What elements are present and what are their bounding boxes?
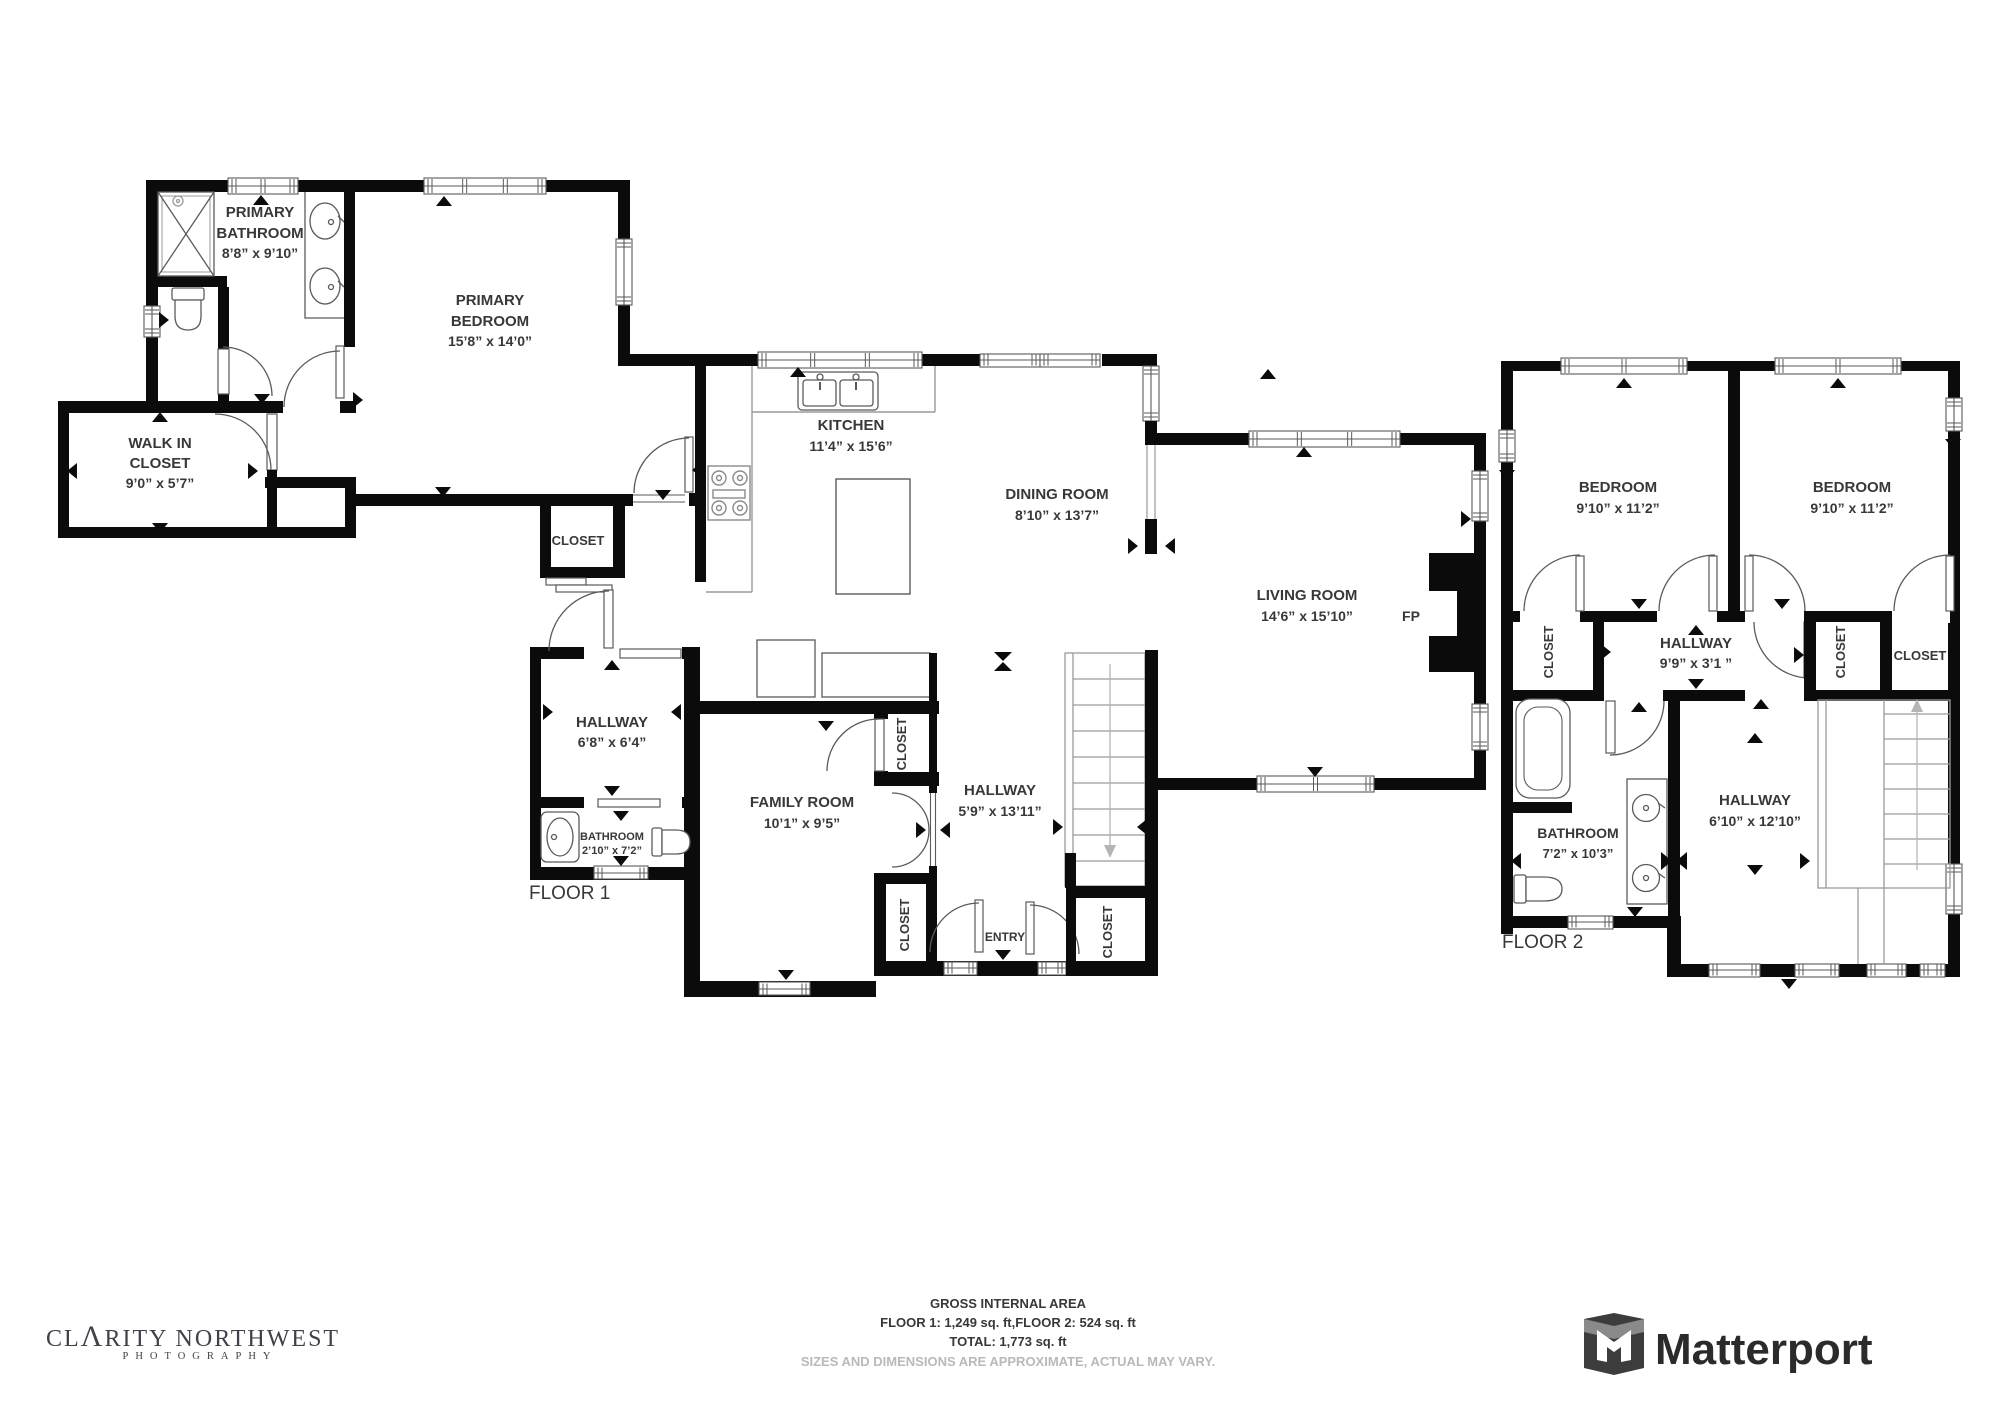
svg-text:6’8” x 6’4”: 6’8” x 6’4” (578, 734, 647, 750)
svg-text:10’1” x 9’5”: 10’1” x 9’5” (764, 815, 840, 831)
svg-text:PRIMARY: PRIMARY (226, 204, 295, 221)
svg-text:KITCHEN: KITCHEN (818, 417, 885, 434)
svg-text:CLOSET: CLOSET (1833, 626, 1848, 679)
svg-text:FP: FP (1402, 608, 1420, 624)
svg-text:HALLWAY: HALLWAY (1660, 635, 1732, 652)
svg-text:15’8” x 14’0”: 15’8” x 14’0” (448, 333, 532, 349)
svg-text:9’10” x 11’2”: 9’10” x 11’2” (1576, 500, 1659, 516)
svg-text:Matterport: Matterport (1655, 1325, 1873, 1374)
svg-text:BATHROOM: BATHROOM (216, 225, 303, 242)
svg-text:HALLWAY: HALLWAY (576, 714, 648, 731)
svg-text:9’0” x 5’7”: 9’0” x 5’7” (126, 475, 195, 491)
svg-text:LIVING ROOM: LIVING ROOM (1257, 587, 1358, 604)
svg-text:6’10” x 12’10”: 6’10” x 12’10” (1709, 813, 1801, 829)
svg-text:CLOSET: CLOSET (897, 899, 912, 952)
svg-text:PHOTOGRAPHY: PHOTOGRAPHY (123, 1351, 278, 1362)
svg-text:GROSS INTERNAL AREA: GROSS INTERNAL AREA (930, 1296, 1087, 1311)
svg-text:8’8” x 9’10”: 8’8” x 9’10” (222, 245, 298, 261)
svg-text:WALK IN: WALK IN (128, 435, 191, 452)
svg-text:CLOSET: CLOSET (1100, 906, 1115, 959)
svg-text:CLOSET: CLOSET (130, 455, 191, 472)
svg-text:SIZES AND DIMENSIONS ARE APPRO: SIZES AND DIMENSIONS ARE APPROXIMATE, AC… (801, 1354, 1215, 1369)
svg-text:CLOSET: CLOSET (1541, 626, 1556, 679)
svg-text:2’10” x 7’2”: 2’10” x 7’2” (582, 845, 642, 857)
svg-text:8’10” x 13’7”: 8’10” x 13’7” (1015, 507, 1099, 523)
svg-text:5’9” x 13’11”: 5’9” x 13’11” (958, 803, 1041, 819)
svg-text:FLOOR 1: FLOOR 1 (529, 883, 610, 904)
svg-text:11’4” x 15’6”: 11’4” x 15’6” (809, 438, 892, 454)
svg-text:HALLWAY: HALLWAY (964, 782, 1036, 799)
svg-text:BATHROOM: BATHROOM (1537, 825, 1618, 841)
svg-text:9’9” x 3’1 ”: 9’9” x 3’1 ” (1660, 655, 1732, 671)
svg-text:CLOSET: CLOSET (1894, 648, 1947, 663)
svg-text:CLOSET: CLOSET (552, 533, 605, 548)
svg-text:PRIMARY: PRIMARY (456, 292, 525, 309)
svg-text:DINING ROOM: DINING ROOM (1005, 486, 1108, 503)
svg-text:FLOOR 1: 1,249 sq. ft,FLOOR 2:: FLOOR 1: 1,249 sq. ft,FLOOR 2: 524 sq. f… (880, 1315, 1136, 1330)
svg-text:BEDROOM: BEDROOM (1813, 479, 1891, 496)
svg-text:BEDROOM: BEDROOM (451, 313, 529, 330)
svg-text:BEDROOM: BEDROOM (1579, 479, 1657, 496)
svg-text:FAMILY ROOM: FAMILY ROOM (750, 794, 854, 811)
svg-text:TOTAL: 1,773 sq. ft: TOTAL: 1,773 sq. ft (949, 1334, 1067, 1349)
svg-text:FLOOR 2: FLOOR 2 (1502, 932, 1583, 953)
svg-text:CLOSET: CLOSET (894, 718, 909, 771)
svg-text:9’10” x 11’2”: 9’10” x 11’2” (1810, 500, 1893, 516)
svg-text:ENTRY: ENTRY (985, 930, 1025, 944)
svg-text:7’2” x 10’3”: 7’2” x 10’3” (1543, 846, 1614, 861)
svg-text:HALLWAY: HALLWAY (1719, 792, 1791, 809)
svg-text:BATHROOM: BATHROOM (580, 831, 644, 843)
svg-text:14’6” x 15’10”: 14’6” x 15’10” (1261, 608, 1353, 624)
